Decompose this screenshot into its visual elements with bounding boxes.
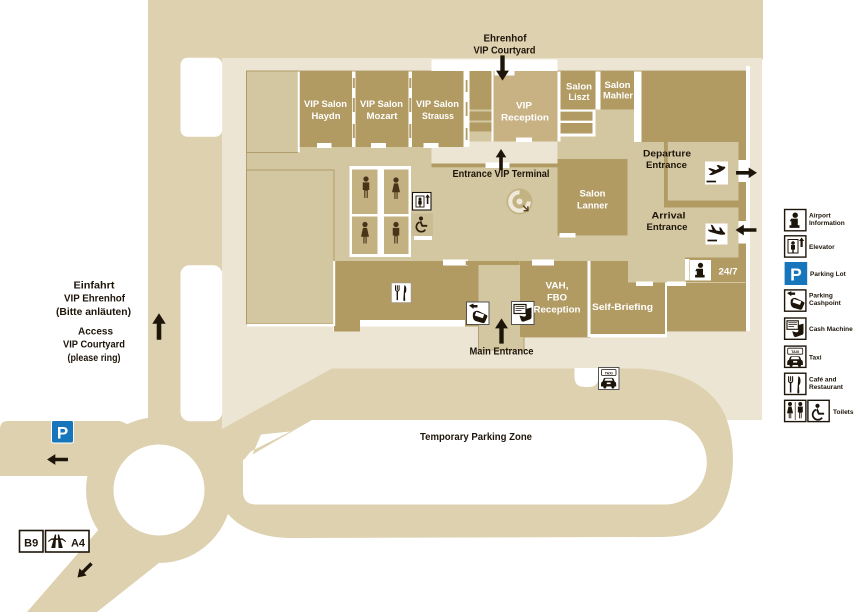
- svg-text:Liszt: Liszt: [569, 92, 590, 102]
- svg-text:Salon: Salon: [580, 189, 606, 199]
- svg-text:Parking: Parking: [809, 293, 833, 300]
- svg-text:P: P: [57, 424, 68, 443]
- svg-text:Haydn: Haydn: [312, 111, 341, 121]
- svg-text:Main Entrance: Main Entrance: [470, 347, 534, 358]
- svg-text:Temporary Parking Zone: Temporary Parking Zone: [420, 432, 532, 443]
- svg-text:P: P: [790, 265, 802, 285]
- svg-text:Self-Briefing: Self-Briefing: [592, 302, 653, 312]
- svg-text:VIP Salon: VIP Salon: [416, 99, 459, 109]
- svg-text:Entrance: Entrance: [646, 160, 687, 171]
- svg-text:VIP Salon: VIP Salon: [360, 99, 403, 109]
- svg-text:Airport: Airport: [809, 213, 832, 220]
- svg-text:Salon: Salon: [605, 80, 631, 90]
- svg-text:Mozart: Mozart: [367, 111, 398, 121]
- svg-text:Departure: Departure: [643, 149, 691, 160]
- svg-text:Entrance VIP Terminal: Entrance VIP Terminal: [453, 169, 550, 180]
- svg-text:Strauss: Strauss: [422, 111, 454, 121]
- svg-text:Restaurant: Restaurant: [809, 384, 844, 391]
- svg-text:VIP: VIP: [516, 101, 532, 111]
- svg-text:Information: Information: [809, 220, 845, 227]
- svg-text:Reception: Reception: [501, 113, 549, 123]
- svg-text:Einfahrt: Einfahrt: [74, 281, 116, 292]
- svg-text:VIP Courtyard: VIP Courtyard: [474, 46, 536, 57]
- svg-text:Parking Lot: Parking Lot: [810, 271, 847, 278]
- svg-text:A4: A4: [71, 538, 86, 550]
- svg-text:(please ring): (please ring): [68, 353, 121, 364]
- svg-text:VIP Salon: VIP Salon: [304, 99, 347, 109]
- svg-text:Access: Access: [78, 327, 113, 338]
- svg-text:FBO: FBO: [547, 293, 567, 303]
- svg-text:VAH,: VAH,: [546, 281, 569, 291]
- svg-text:Toilets: Toilets: [833, 409, 854, 416]
- svg-text:VIP Courtyard: VIP Courtyard: [63, 340, 125, 351]
- svg-text:Café and: Café and: [809, 377, 836, 384]
- svg-text:(Bitte anläuten): (Bitte anläuten): [56, 307, 131, 318]
- svg-text:TAXI: TAXI: [605, 371, 613, 375]
- svg-text:Lanner: Lanner: [577, 201, 609, 211]
- svg-text:TAXI: TAXI: [791, 350, 799, 354]
- svg-text:Cash Machine: Cash Machine: [809, 326, 853, 333]
- svg-text:Cashpoint: Cashpoint: [809, 300, 842, 307]
- svg-text:Elevator: Elevator: [809, 244, 835, 251]
- svg-text:VIP Ehrenhof: VIP Ehrenhof: [64, 294, 126, 305]
- svg-text:Arrival: Arrival: [652, 211, 686, 222]
- svg-text:24/7: 24/7: [719, 267, 738, 278]
- svg-text:B9: B9: [24, 538, 38, 550]
- svg-text:Mahler: Mahler: [603, 91, 634, 101]
- svg-text:Ehrenhof: Ehrenhof: [484, 34, 528, 45]
- svg-text:Entrance: Entrance: [647, 222, 688, 233]
- svg-text:Salon: Salon: [566, 82, 592, 92]
- svg-text:Reception: Reception: [534, 305, 581, 315]
- svg-text:Taxi: Taxi: [809, 354, 822, 361]
